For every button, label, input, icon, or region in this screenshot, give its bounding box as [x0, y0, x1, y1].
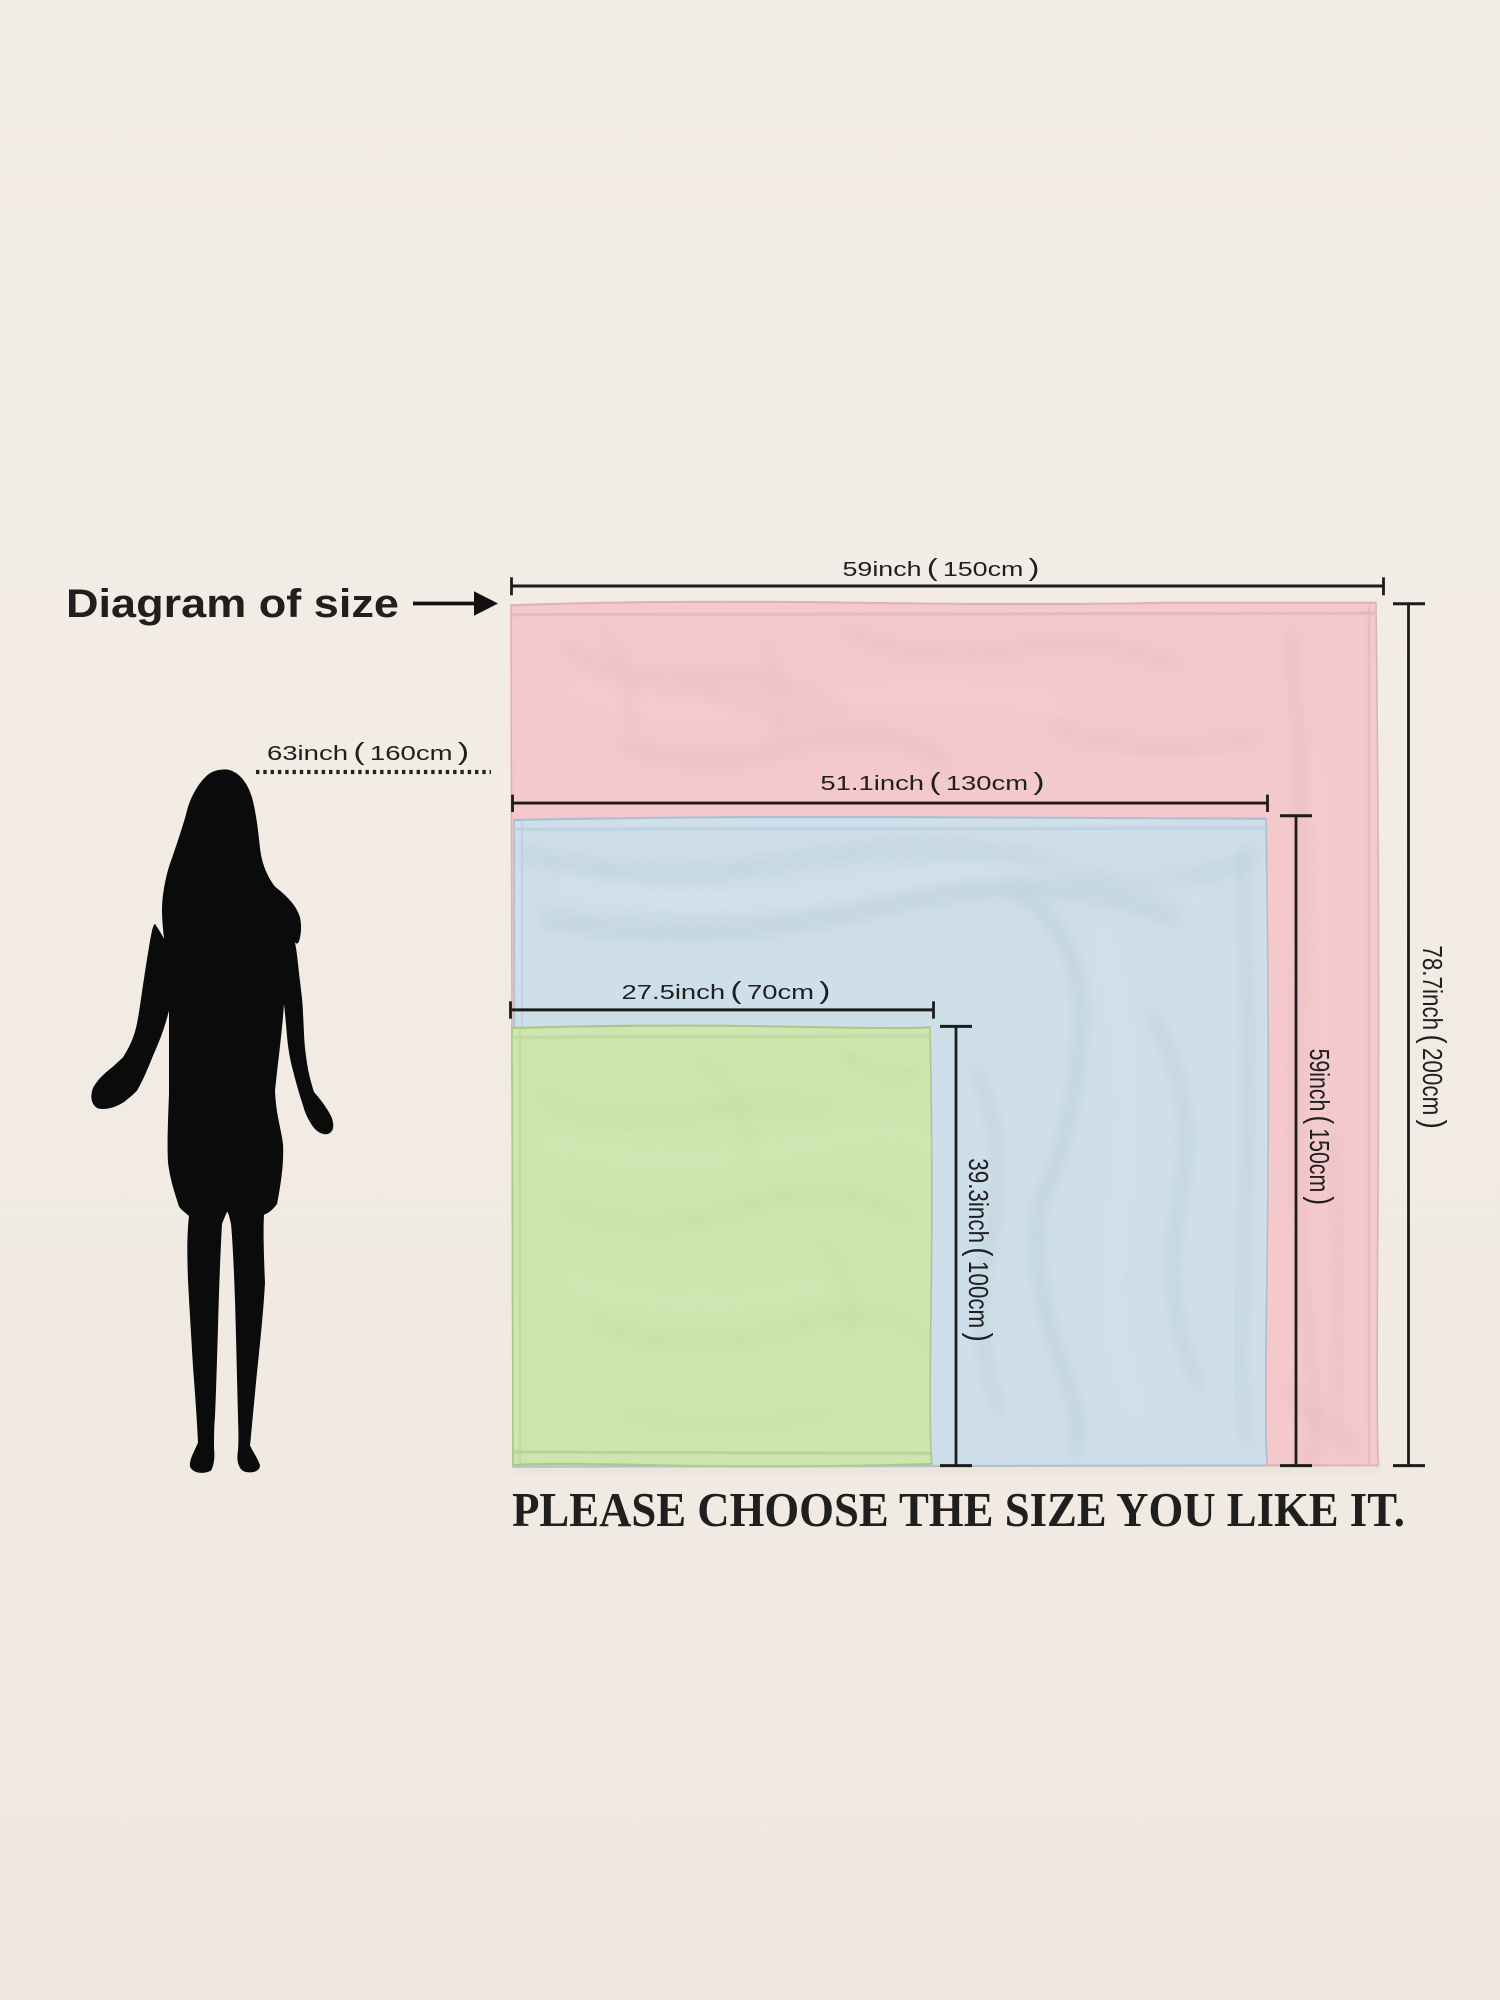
- svg-text:PLEASE CHOOSE THE SIZE YOU LIK: PLEASE CHOOSE THE SIZE YOU LIKE IT.: [512, 1483, 1405, 1537]
- svg-text:51.1inch(130cm): 51.1inch(130cm): [820, 768, 1044, 796]
- svg-text:Diagram of size: Diagram of size: [66, 581, 399, 626]
